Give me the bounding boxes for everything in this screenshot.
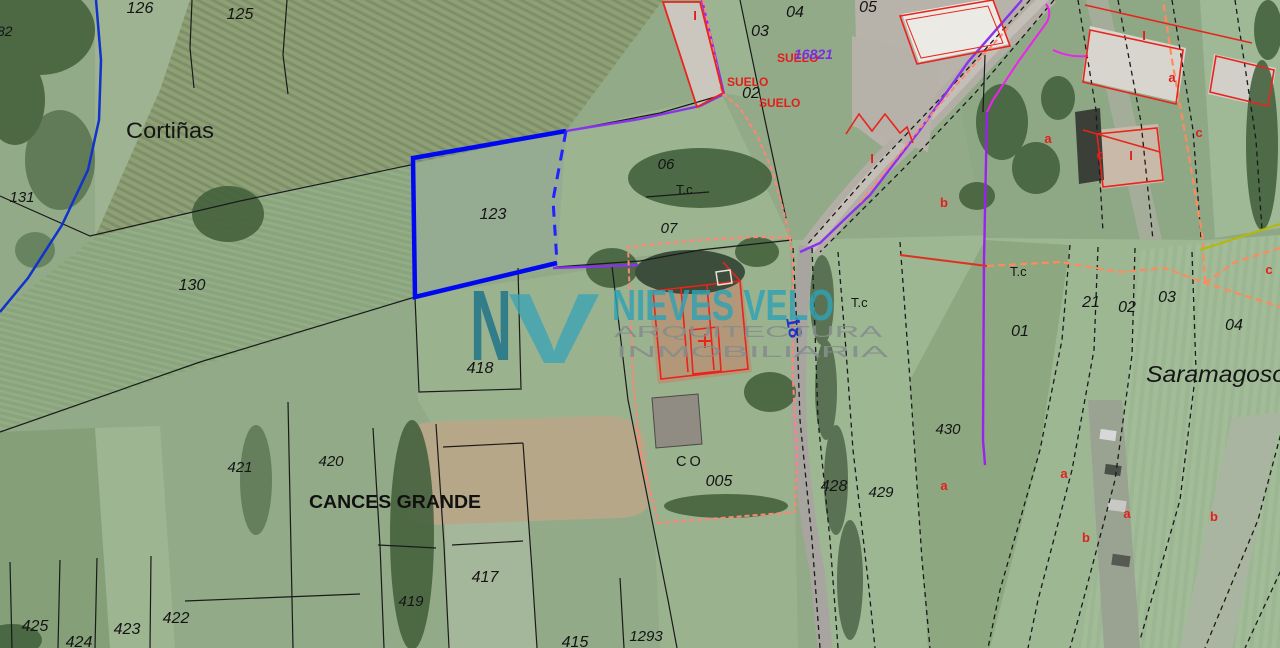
parcel-03-top: 03 — [751, 23, 769, 40]
zone-suelo-3: SUELO — [759, 96, 800, 110]
parcel-05: 05 — [859, 0, 877, 16]
parcel-423: 423 — [114, 621, 141, 638]
tree-in-parcel-123 — [192, 186, 264, 242]
zone-tc-3: T.c — [1010, 264, 1027, 279]
road-ref-purple: 16821 — [794, 46, 833, 62]
parcel-005: 005 — [706, 473, 733, 490]
parcel-21: 21 — [1081, 294, 1100, 311]
place-saramagoso: Saramagoso — [1146, 361, 1280, 387]
mark-c-2: c — [1195, 125, 1202, 140]
parcel-82: 82 — [0, 23, 13, 39]
zone-tc-1: T.c — [676, 182, 693, 197]
zone-suelo-2: SUELO — [727, 75, 768, 89]
parcel-424: 424 — [66, 634, 93, 648]
parcel-417: 417 — [472, 569, 500, 586]
mark-b-1: b — [940, 195, 948, 210]
mark-i-3: I — [1142, 28, 1146, 43]
watermark-sub-2: INMOBILIARIA — [616, 344, 889, 361]
mark-c-1: c — [1096, 147, 1103, 162]
zone-co: CO — [676, 454, 704, 470]
parcel-428: 428 — [821, 478, 848, 495]
mark-a-5: a — [1123, 506, 1131, 521]
parcel-415: 415 — [562, 634, 589, 648]
parcel-126: 126 — [127, 0, 154, 17]
parcel-125: 125 — [227, 6, 254, 23]
parcel-430: 430 — [935, 421, 961, 438]
zone-tc-2: T.c — [851, 295, 868, 310]
mark-b-3: b — [1210, 509, 1218, 524]
mark-a-1: a — [1044, 131, 1052, 146]
parcel-130: 130 — [179, 277, 206, 294]
parcel-1293: 1293 — [629, 628, 663, 645]
parcel-425: 425 — [22, 618, 49, 635]
mark-a-3: a — [940, 478, 948, 493]
watermark-title: NIEVES VELO — [612, 281, 834, 330]
parcel-07: 07 — [661, 220, 678, 237]
parcel-123: 123 — [480, 206, 507, 223]
parcel-04-right: 04 — [1225, 317, 1243, 334]
parcel-06: 06 — [658, 156, 675, 173]
parcel-03-right: 03 — [1158, 289, 1176, 306]
watermark-sub-1: ARQUITECTURA — [614, 324, 883, 341]
parcel-429: 429 — [868, 484, 894, 501]
mark-c-3: c — [1265, 262, 1272, 277]
watermark-monogram-n: N — [470, 270, 512, 382]
mark-i-1: I — [693, 8, 697, 23]
place-cortinas: Cortiñas — [126, 118, 214, 143]
parcel-01: 01 — [1011, 323, 1029, 340]
parcel-02-right: 02 — [1118, 299, 1136, 316]
parcel-421: 421 — [227, 459, 252, 476]
mark-a-2: a — [1168, 70, 1176, 85]
mark-i-2: I — [870, 151, 874, 166]
parcel-04-top: 04 — [786, 4, 804, 21]
parcel-420: 420 — [318, 453, 344, 470]
place-cances-grande: CANCES GRANDE — [309, 491, 481, 512]
map-viewport[interactable]: 8212612513113012306070503040201210203044… — [0, 0, 1280, 648]
cadastral-map-svg[interactable]: 8212612513113012306070503040201210203044… — [0, 0, 1280, 648]
mark-i-4: I — [1129, 148, 1133, 163]
mark-b-2: b — [1082, 530, 1090, 545]
mark-a-4: a — [1060, 466, 1068, 481]
parcel-419: 419 — [398, 593, 424, 610]
shed — [652, 394, 702, 448]
parcel-422: 422 — [163, 610, 190, 627]
parcel-131: 131 — [9, 189, 34, 206]
watermark-monogram-v: V — [508, 273, 600, 385]
